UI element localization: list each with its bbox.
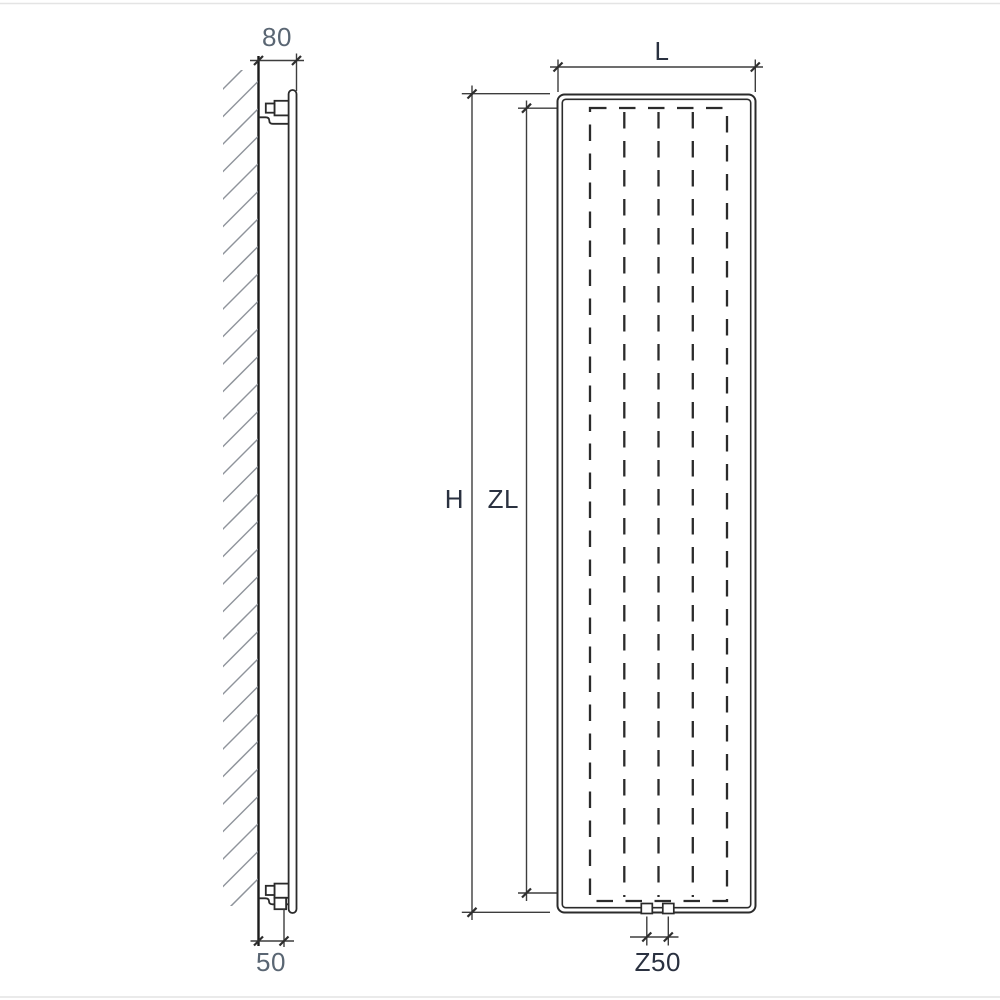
hatch-line xyxy=(222,522,258,558)
hatch-line xyxy=(222,412,258,448)
hatch-line xyxy=(222,302,258,338)
hatch-line xyxy=(222,439,258,475)
bottom-connection-stub xyxy=(275,898,287,909)
hatch-line xyxy=(222,247,258,283)
hatch-line xyxy=(222,219,258,255)
bottom-mounting-bracket xyxy=(259,884,289,910)
hatch-line xyxy=(222,659,258,695)
hatch-line xyxy=(222,577,258,613)
hatch-line xyxy=(222,109,258,145)
connection-stub-left xyxy=(641,904,652,914)
hatch-line xyxy=(222,192,258,228)
hatch-line xyxy=(222,852,258,888)
hatch-line xyxy=(222,54,258,90)
dimension-label: 50 xyxy=(256,947,286,977)
front-view: H ZL L xyxy=(445,36,763,977)
hatch-line xyxy=(222,137,258,173)
hatch-line xyxy=(222,797,258,833)
radiator-panel-profile xyxy=(289,90,297,913)
hatch-line xyxy=(222,604,258,640)
dimension-label: Z50 xyxy=(635,947,681,977)
bracket-wall-plate xyxy=(266,104,275,113)
hatch-line xyxy=(222,824,258,860)
hatch-line xyxy=(222,357,258,393)
dimension-offset-50: 50 xyxy=(251,909,295,977)
radiator-dimension-drawing: 80 50 H ZL xyxy=(0,0,1000,1000)
dimension-label: L xyxy=(655,36,670,66)
hatch-line xyxy=(222,384,258,420)
hatch-line xyxy=(222,82,258,118)
dimension-width-L: L xyxy=(550,36,763,92)
dimension-label: 80 xyxy=(262,22,292,52)
hatch-line xyxy=(222,274,258,310)
hatch-line xyxy=(222,164,258,200)
drawing-canvas: 80 50 H ZL xyxy=(0,0,1000,1000)
radiator-outer-frame xyxy=(558,95,756,913)
hatch-line xyxy=(222,742,258,778)
dimension-connection-Z50: Z50 xyxy=(630,917,681,978)
hatch-line xyxy=(222,494,258,530)
hatch-line xyxy=(222,714,258,750)
bracket-body xyxy=(275,884,289,898)
top-mounting-bracket xyxy=(259,101,289,124)
hatch-line xyxy=(222,907,258,943)
hatch-line xyxy=(222,549,258,585)
bracket-body xyxy=(275,101,289,116)
hatch-line xyxy=(222,769,258,805)
connection-stub-right xyxy=(663,904,674,914)
hatch-line xyxy=(222,687,258,723)
dimension-label: H xyxy=(445,484,464,514)
bracket-hook xyxy=(259,117,289,124)
side-view: 80 50 xyxy=(222,22,304,977)
bracket-wall-plate xyxy=(266,886,275,895)
hatch-line xyxy=(222,467,258,503)
hatch-line xyxy=(222,632,258,668)
hatch-line xyxy=(222,329,258,365)
wall-hatching xyxy=(222,54,258,943)
hatch-line xyxy=(222,879,258,915)
dimension-label: ZL xyxy=(488,484,519,514)
